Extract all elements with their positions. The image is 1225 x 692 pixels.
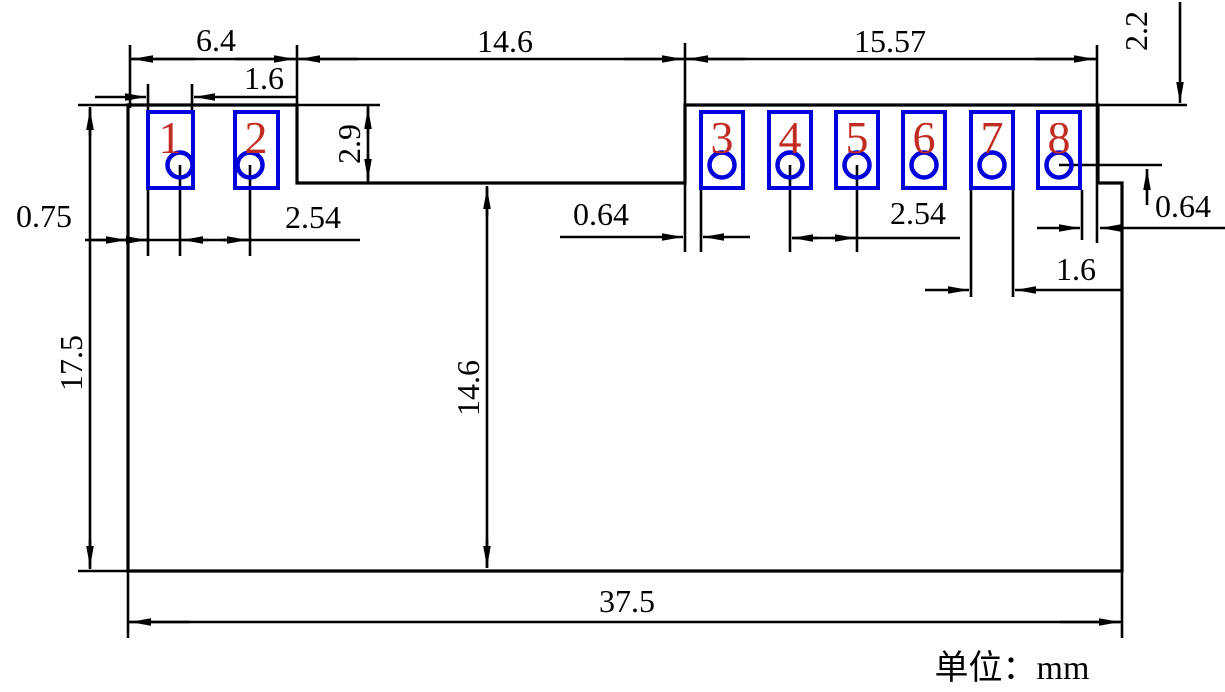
pad-1-number: 1: [159, 112, 182, 163]
pad-7-number: 7: [981, 112, 1004, 163]
dim-pad1-width: 1.6: [95, 60, 297, 97]
dim-notch-to-bottom-label: 14.6: [450, 360, 486, 416]
dim-pad1-width-label: 1.6: [244, 60, 284, 96]
dim-notch-depth: 2.9: [331, 106, 368, 182]
dim-edge-to-pad3-gap-label: 0.64: [573, 196, 629, 232]
dim-pad7-width-label: 1.6: [1056, 251, 1096, 287]
pads: 1 2 3 4 5 6 7: [148, 112, 1080, 188]
dim-top-edge-to-hole-row-label: 2.2: [1118, 11, 1154, 51]
technical-drawing-canvas: 1 2 3 4 5 6 7: [0, 0, 1225, 692]
pad-8: 8: [1038, 112, 1080, 188]
dim-pad7-width: 1.6: [925, 251, 1122, 290]
pad-5: 5: [836, 112, 878, 188]
pad-6: 6: [903, 112, 945, 188]
dim-notch-to-bottom: 14.6: [450, 186, 487, 568]
pad-7: 7: [971, 112, 1013, 188]
dim-top-edge-to-hole-row: 2.2: [1118, 2, 1180, 103]
dim-board-height-label: 17.5: [53, 335, 89, 391]
dim-board-height: 17.5: [53, 107, 90, 569]
pad-4: 4: [769, 112, 811, 188]
unit-label: 单位：mm: [935, 649, 1090, 687]
dim-hole-pitch-right-label: 2.54: [890, 195, 946, 231]
dim-left-edge-to-pad1-label: 0.75: [16, 198, 72, 234]
pad-3-number: 3: [711, 112, 734, 163]
dim-right-section-width: 15.57: [687, 23, 1095, 59]
dim-edge-to-pad3-gap: 0.64: [560, 196, 750, 237]
dim-left-section-width-label: 6.4: [196, 22, 236, 58]
dim-pad8-to-edge-gap-label: 0.64: [1155, 188, 1211, 224]
pad-3: 3: [701, 112, 743, 188]
pad-1: 1: [148, 112, 193, 188]
dim-left-section-width: 6.4: [131, 22, 1096, 59]
dim-notch-depth-label: 2.9: [331, 124, 367, 164]
dim-notch-width: 14.6: [299, 23, 683, 59]
pad-2: 2: [235, 112, 278, 188]
dim-hole-pitch-left: 2.54: [182, 199, 341, 240]
dim-board-width-label: 37.5: [599, 583, 655, 619]
drawing-page: 1 2 3 4 5 6 7: [0, 0, 1225, 692]
pad-8-number: 8: [1048, 112, 1071, 163]
dim-hole-pitch-right: 2.54: [792, 195, 960, 238]
dim-notch-width-label: 14.6: [477, 23, 533, 59]
pad-5-number: 5: [846, 112, 869, 163]
dim-right-section-width-label: 15.57: [854, 23, 926, 59]
pad-6-number: 6: [913, 112, 936, 163]
dim-board-width: 37.5: [128, 583, 1122, 622]
dim-hole-pitch-left-label: 2.54: [285, 199, 341, 235]
pad-4-number: 4: [779, 112, 802, 163]
pad-2-number: 2: [245, 112, 268, 163]
